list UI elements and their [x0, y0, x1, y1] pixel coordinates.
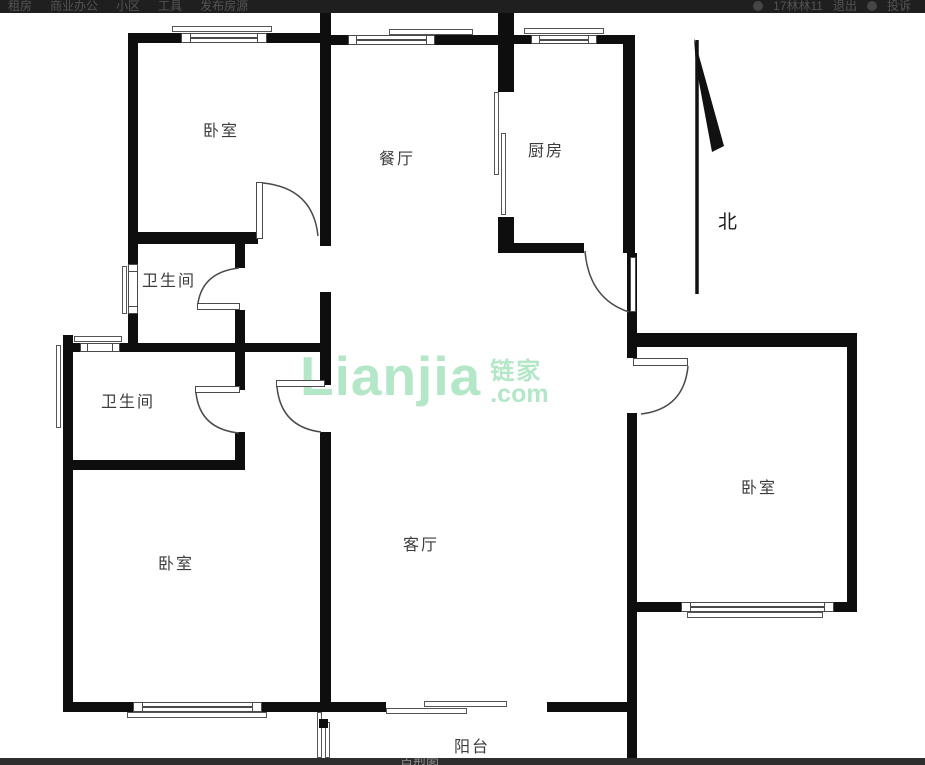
nav-item-tools[interactable]: 工具 [158, 0, 182, 13]
room-label-bedroom-nw: 卧室 [203, 117, 239, 141]
compass-north-label: 北 [718, 207, 737, 234]
user-avatar-icon [753, 1, 763, 11]
room-label-bedroom-sw: 卧室 [158, 550, 194, 574]
lianjia-floorplan-page: Lianjia 链家 .com [0, 0, 925, 765]
door-arc [641, 366, 688, 414]
bottom-tab-bar: 户型图 [0, 758, 925, 765]
room-label-bathroom-lower: 卫生间 [101, 388, 155, 412]
door-arc [277, 387, 321, 432]
room-label-balcony: 阳台 [454, 733, 490, 757]
complaint-icon [867, 1, 877, 11]
tab-floorplan[interactable]: 户型图 [400, 758, 439, 765]
complaint-link[interactable]: 投诉 [887, 0, 911, 13]
nav-item-publish[interactable]: 发布房源 [200, 0, 248, 13]
door-arc [263, 183, 318, 236]
floorplan-image: Lianjia 链家 .com [0, 0, 925, 765]
room-label-dining: 餐厅 [379, 145, 415, 169]
room-label-living: 客厅 [403, 531, 439, 555]
nav-item-rent[interactable]: 租房 [8, 0, 32, 13]
door-arc [585, 251, 629, 312]
door-arc [198, 268, 239, 303]
nav-item-commercial[interactable]: 商业办公 [50, 0, 98, 13]
logout-link[interactable]: 退出 [833, 0, 857, 13]
plan-linework-layer [0, 0, 925, 765]
door-arc [196, 393, 239, 433]
top-nav-bar: 租房 商业办公 小区 工具 发布房源 17林林11 退出 投诉 [0, 0, 925, 13]
username-menu[interactable]: 17林林11 [773, 0, 823, 13]
room-label-bedroom-east: 卧室 [741, 474, 777, 498]
room-label-kitchen: 厨房 [528, 137, 564, 161]
room-label-bathroom-upper: 卫生间 [142, 267, 196, 291]
nav-item-community[interactable]: 小区 [116, 0, 140, 13]
